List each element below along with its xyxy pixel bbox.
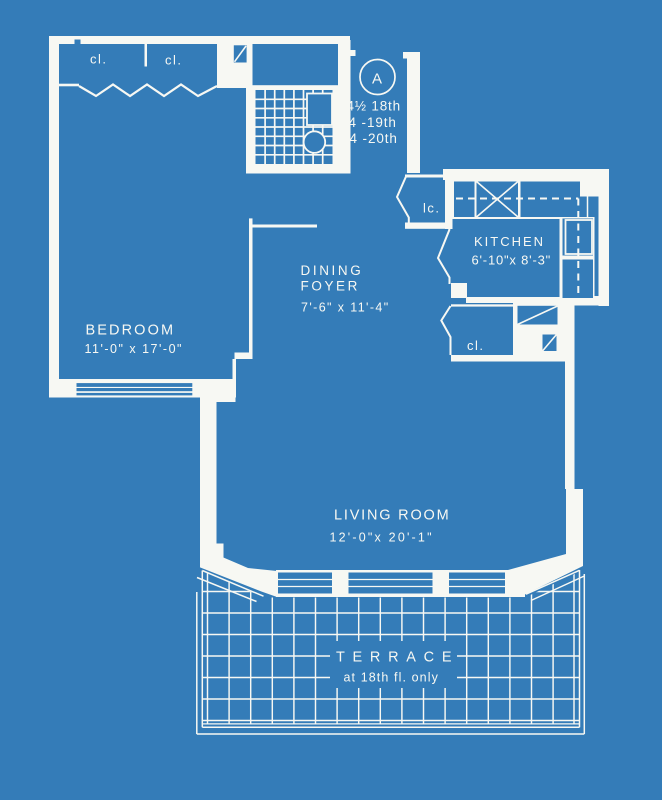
svg-text:at 18th fl. only: at 18th fl. only	[344, 671, 439, 685]
svg-text:LIVING ROOM: LIVING ROOM	[334, 508, 450, 524]
svg-text:6'-10"x 8'-3": 6'-10"x 8'-3"	[472, 253, 552, 268]
svg-text:cl.: cl.	[90, 52, 108, 67]
svg-text:4½ 18th: 4½ 18th	[347, 99, 401, 114]
svg-text:4 -19th: 4 -19th	[349, 115, 397, 130]
svg-text:FOYER: FOYER	[301, 279, 361, 294]
svg-text:lc.: lc.	[423, 201, 441, 216]
svg-text:4 -20th: 4 -20th	[350, 131, 398, 146]
svg-text:12'-0"x 20'-1": 12'-0"x 20'-1"	[330, 531, 434, 545]
svg-text:BEDROOM: BEDROOM	[86, 323, 176, 339]
svg-text:A: A	[372, 71, 382, 88]
svg-text:TERRACE: TERRACE	[336, 650, 459, 666]
svg-text:11'-0" x 17'-0": 11'-0" x 17'-0"	[85, 342, 183, 356]
svg-text:KITCHEN: KITCHEN	[474, 234, 545, 249]
svg-text:cl.: cl.	[467, 338, 485, 353]
svg-text:7'-6" x 11'-4": 7'-6" x 11'-4"	[301, 301, 390, 315]
svg-text:DINING: DINING	[301, 263, 364, 278]
svg-text:cl.: cl.	[165, 53, 183, 68]
